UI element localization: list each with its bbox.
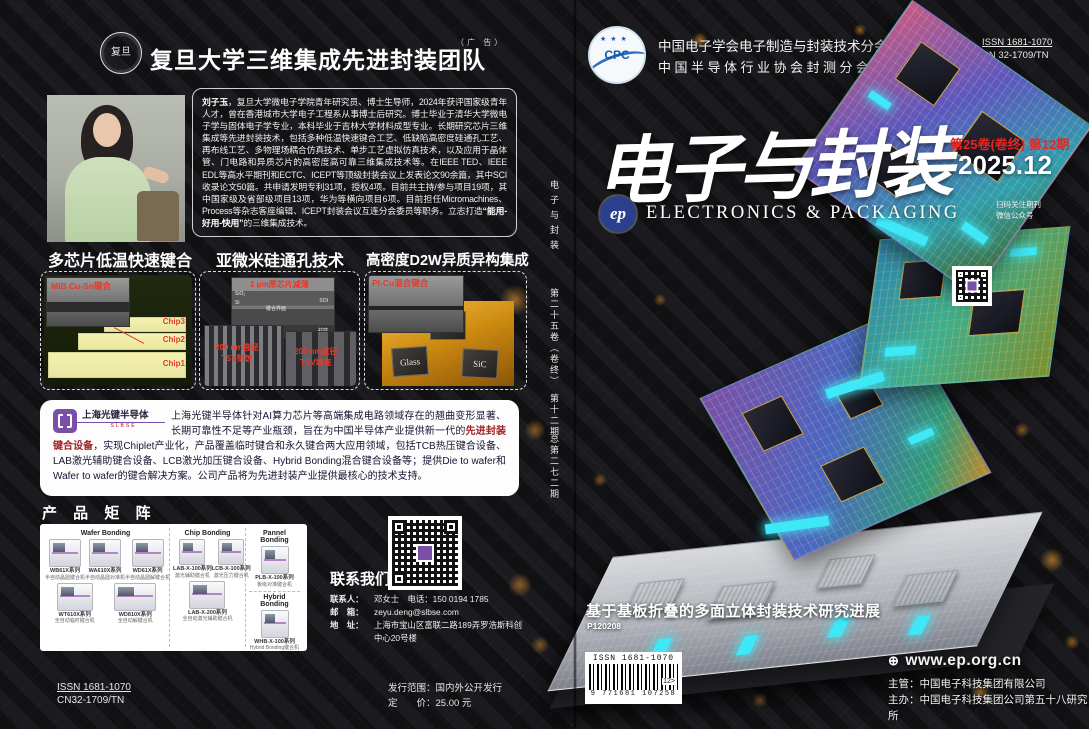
- machine-image: [261, 610, 289, 638]
- group-label: Hybrid Bonding: [249, 594, 300, 608]
- panel-tsv: 1 μm厚芯片减薄 SiO₂ Si 键合界面 SOI 衬底 200 nm直径 T…: [199, 271, 360, 390]
- product-item: WD810X系列 全自动解键合机: [114, 583, 156, 625]
- barcode-issn: ISSN 1681-1070: [589, 654, 678, 663]
- chip2-label: Chip2: [163, 335, 185, 344]
- sem-tsv-etch: 200 nm直径 TSV刻蚀: [204, 325, 284, 386]
- front-footer: ⊕ www.ep.org.cn 主管：中国电子科技集团有限公司 主办：中国电子科…: [888, 652, 1089, 724]
- magazine-cover-spread: 复旦 复旦大学三维集成先进封装团队 （广 告） 刘子玉，复旦大学微电子学院青年研…: [0, 0, 1089, 729]
- contact-line-email: 邮 箱： zeyu.deng@slbse.com: [330, 606, 526, 619]
- barcode-digits: 9 771681 107258: [589, 690, 678, 698]
- back-footer-distribution: 发行范围：国内外公开发行 定 价：25.00 元: [388, 681, 502, 711]
- picu-label: PI-Cu混合键合: [372, 277, 428, 289]
- slbse-logo-icon: [53, 409, 77, 433]
- group-label: Pannel Bonding: [249, 530, 300, 544]
- panel-title-d2w: 高密度D2W异质异构集成: [366, 249, 529, 270]
- team-title: 复旦大学三维集成先进封装团队: [150, 41, 486, 75]
- machine-image: [179, 539, 205, 565]
- spine-cumulative: 总第二七二期: [548, 434, 561, 500]
- portrait-chair: [137, 191, 179, 241]
- machine-image: [218, 539, 244, 565]
- spine-volume-issue: 第二十五卷（卷终） 第十二期: [548, 288, 561, 438]
- tsv-fill-label: 200 nm直径 TSV填充: [294, 346, 338, 368]
- back-footer-issn: ISSN 1681-1070 CN32-1709/TN: [57, 681, 131, 707]
- bio-box: 刘子玉，复旦大学微电子学院青年研究员、博士生导师，2024年获评国家级青年人才，…: [192, 88, 517, 237]
- layer-si: Si: [235, 300, 239, 306]
- sem-tsv-fill: 200 nm直径 TSV填充: [285, 331, 356, 386]
- divider: [249, 591, 300, 592]
- product-item: WHB-X-100系列 Hybrid Bonding键合机: [249, 610, 300, 652]
- bio-name: 刘子玉: [202, 97, 228, 107]
- barcode-suffix: 12>: [662, 678, 676, 685]
- group-chip-bonding: Chip Bonding LAB-X-100系列 激光辅助键合机 LCB-X-1…: [170, 528, 246, 647]
- die-sic: SiC: [461, 348, 498, 379]
- machine-image: [57, 583, 93, 611]
- slbse-logo: 上海光键半导体 SLBSE: [53, 409, 165, 436]
- product-matrix-title: 产 品 矩 阵: [42, 502, 157, 523]
- organizer-line: 主办：中国电子科技集团公司第五十八研究所: [888, 692, 1089, 724]
- product-matrix-box: Wafer Bonding WB61X系列 半自动晶圆键合机 WA610X系列 …: [40, 524, 307, 651]
- group-pannel-hybrid: Pannel Bonding PLB-X-100系列 板级对准键合机 Hybri…: [246, 528, 303, 647]
- group-label: Chip Bonding: [173, 530, 242, 537]
- cover-date: 2025.12: [958, 150, 1052, 181]
- machine-image: [89, 539, 121, 567]
- fudan-seal-icon: 复旦: [100, 32, 142, 74]
- cpc-logo-stars: ★ ★ ★: [600, 35, 628, 43]
- contact-block: 联系人： 邓女士 电话：150 0194 1785 邮 箱： zeyu.deng…: [330, 593, 526, 645]
- issn-barcode: ISSN 1681-1070 12> 9 771681 107258: [585, 652, 682, 704]
- layer-sio2: SiO₂: [235, 291, 245, 297]
- contact-title: 联系我们: [330, 568, 390, 589]
- panel-multichip-bonding: Chip3 Chip2 Chip1 MIB Cu-Sn键合: [40, 271, 196, 390]
- journal-title-en: ELECTRONICS & PACKAGING: [646, 203, 960, 224]
- product-item: LCB-X-100系列 激光压力键合机: [212, 539, 251, 579]
- machine-image: [114, 583, 156, 611]
- ad-note: （广 告）: [456, 37, 505, 48]
- portrait-photo: [47, 95, 185, 242]
- product-item: PLB-X-100系列 板级对准键合机: [249, 546, 300, 588]
- barcode-bars: 12>: [589, 664, 678, 690]
- machine-image: [49, 539, 81, 567]
- thinning-label: 1 μm厚芯片减薄: [250, 279, 309, 290]
- qr-caption: 扫码关注期刊 微信公众号: [996, 199, 1041, 221]
- layer-interface: 键合界面: [266, 306, 286, 312]
- group-wafer-bonding: Wafer Bonding WB61X系列 半自动晶圆键合机 WA610X系列 …: [42, 528, 170, 647]
- layer-soi: SOI: [319, 298, 328, 304]
- website-line: ⊕ www.ep.org.cn: [888, 652, 1089, 670]
- globe-icon: ⊕: [888, 653, 899, 669]
- chip3-label: Chip3: [163, 317, 185, 326]
- sem-inset-cusn: MIB Cu-Sn键合: [46, 277, 130, 327]
- spine-title: 电子与封装: [548, 180, 561, 255]
- chip1-label: Chip1: [163, 359, 185, 368]
- page-fold: [573, 0, 577, 729]
- machine-image: [261, 546, 289, 574]
- website-url: www.ep.org.cn: [905, 652, 1021, 670]
- featured-article-code: P120208: [587, 621, 621, 631]
- product-item: LAB-X-200系列 全自动激光辅助键合机: [182, 581, 232, 623]
- cusn-label: MIB Cu-Sn键合: [51, 280, 111, 292]
- die-glass: Glass: [391, 346, 429, 377]
- product-item: LAB-X-100系列 激光辅助键合机: [173, 539, 212, 579]
- machine-image: [189, 581, 225, 609]
- product-item: WD61X系列 半自动晶圆解键合机: [125, 539, 170, 581]
- tsv-etch-label: 200 nm直径 TSV刻蚀: [215, 342, 259, 364]
- contact-line-person: 联系人： 邓女士 电话：150 0194 1785: [330, 593, 526, 606]
- supervisor-line: 主管：中国电子科技集团有限公司: [888, 676, 1089, 692]
- ep-logo: ep: [600, 196, 636, 232]
- portrait-face: [93, 113, 121, 147]
- panel-title-tsv: 亚微米硅通孔技术: [216, 247, 344, 271]
- bio-text: 刘子玉，复旦大学微电子学院青年研究员、博士生导师，2024年获评国家级青年人才，…: [202, 96, 507, 229]
- front-qr-code: [952, 266, 992, 306]
- machine-image: [132, 539, 164, 567]
- wechat-qr-code: [388, 516, 462, 590]
- sem-picu: PI-Cu混合键合: [368, 275, 464, 333]
- product-item: WT610X系列 全自动临时键合机: [55, 583, 95, 625]
- product-item: WB61X系列 半自动晶圆键合机: [45, 539, 85, 581]
- panel-d2w: GaN Glass SiC PI-Cu混合键合: [364, 271, 527, 390]
- panel-title-bonding: 多芯片低温快速键合: [48, 247, 192, 271]
- contact-line-address: 地 址： 上海市宝山区富联二路189弄罗浩斯科创中心20号楼: [330, 619, 526, 645]
- featured-article-title: 基于基板折叠的多面立体封装技术研究进展: [586, 600, 881, 621]
- group-label: Wafer Bonding: [45, 530, 166, 537]
- product-item: WA610X系列 半自动晶圆对准机: [85, 539, 125, 581]
- company-intro-box: 上海光键半导体 SLBSE 上海光键半导体针对AI算力芯片等高端集成电路领域存在…: [40, 400, 519, 496]
